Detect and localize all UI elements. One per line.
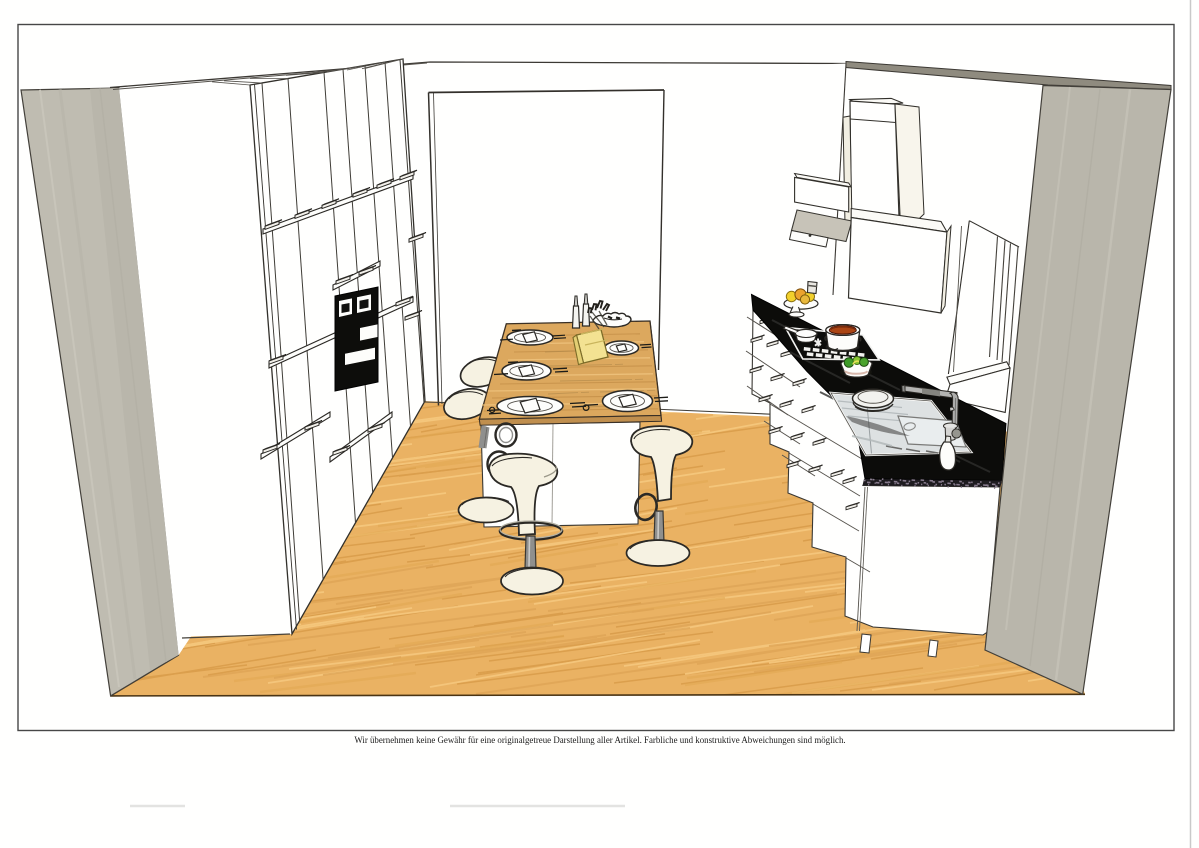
svg-text:Wir übernehmen keine Gewähr fü: Wir übernehmen keine Gewähr für eine ori… (354, 735, 845, 745)
